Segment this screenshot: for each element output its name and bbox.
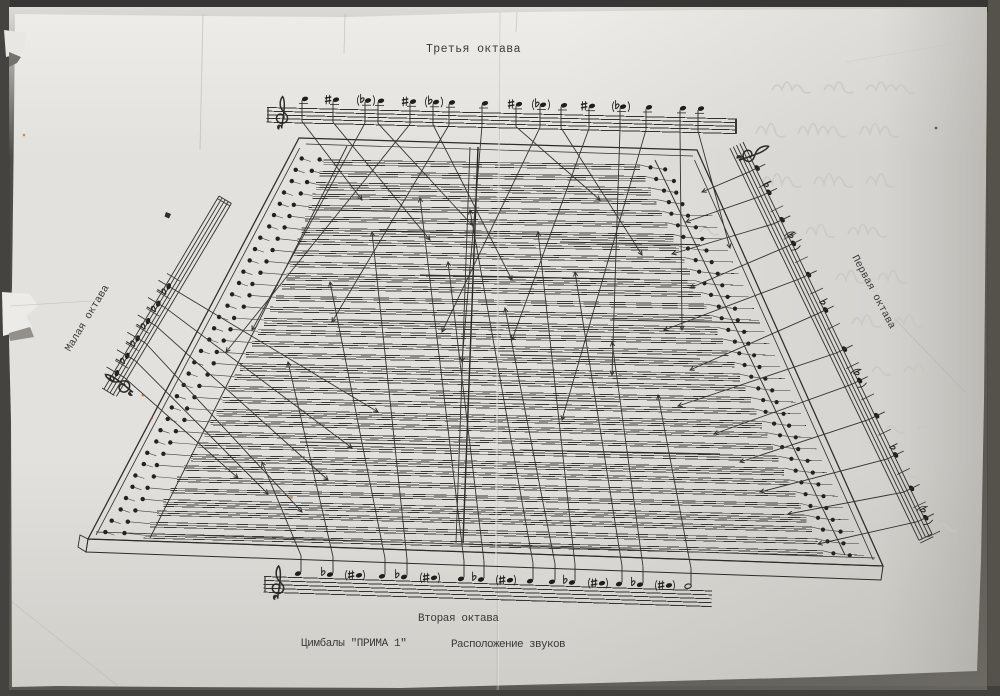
svg-text:Цимбалы "ПРИМА 1": Цимбалы "ПРИМА 1" xyxy=(301,637,406,650)
svg-text:Вторая октава: Вторая октава xyxy=(418,613,499,625)
svg-text:Третья октава: Третья октава xyxy=(426,43,521,56)
svg-text:Расположение звуков: Расположение звуков xyxy=(451,639,565,651)
